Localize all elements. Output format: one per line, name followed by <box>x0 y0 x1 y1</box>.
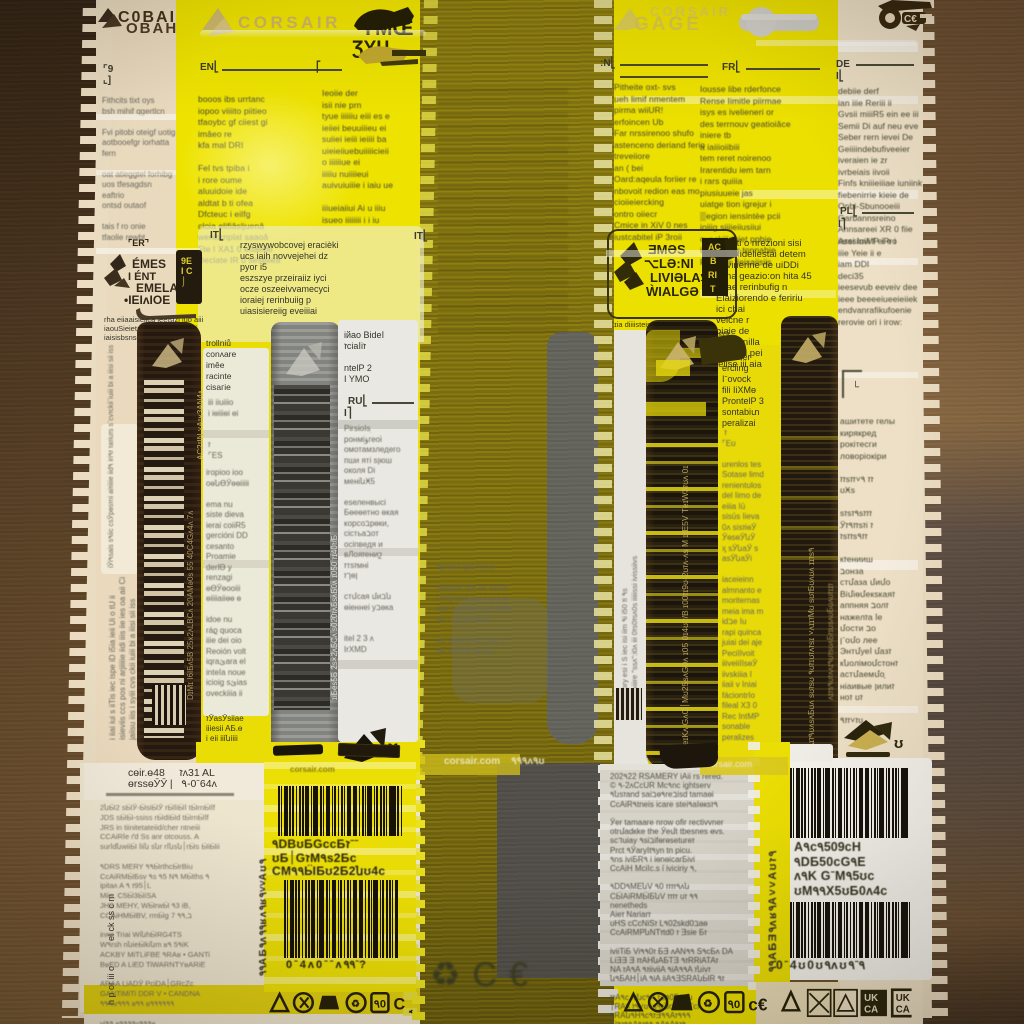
svg-text:Cܱ: Cܱ <box>394 995 414 1014</box>
svg-text:♻: ♻ <box>351 999 360 1010</box>
svg-text:LIVIƏLAʸ: LIVIƏLAʸ <box>650 270 706 285</box>
svg-text:ẀIALGƏ: ẀIALGƏ <box>646 284 699 299</box>
svg-text:UK: UK <box>896 993 910 1004</box>
svg-text:CA: CA <box>864 1005 878 1016</box>
svg-text:OBAH: OBAH <box>126 20 178 34</box>
svg-text:٩0: ٩0 <box>728 999 741 1011</box>
svg-text:ʊ: ʊ <box>894 735 903 752</box>
svg-text:•IEIʌIOE: •IEIʌIOE <box>124 293 170 307</box>
svg-text:ÉMES: ÉMES <box>132 256 166 271</box>
svg-text:C€: C€ <box>904 14 917 25</box>
svg-text:⌜ER⌝: ⌜ER⌝ <box>128 238 149 248</box>
svg-text:♻: ♻ <box>703 998 713 1010</box>
svg-text:UK: UK <box>864 993 878 1004</box>
svg-text:CORSAIR: CORSAIR <box>650 4 731 19</box>
svg-text:⌥LƏ:NI: ⌥LƏ:NI <box>644 256 694 271</box>
svg-text:B: B <box>710 256 717 266</box>
svg-text:٩0: ٩0 <box>374 999 386 1011</box>
svg-text:CA: CA <box>896 1005 910 1016</box>
svg-text:ϲ€: ϲ€ <box>748 994 768 1013</box>
svg-text:RI: RI <box>708 270 717 280</box>
svg-text:T: T <box>710 284 716 294</box>
